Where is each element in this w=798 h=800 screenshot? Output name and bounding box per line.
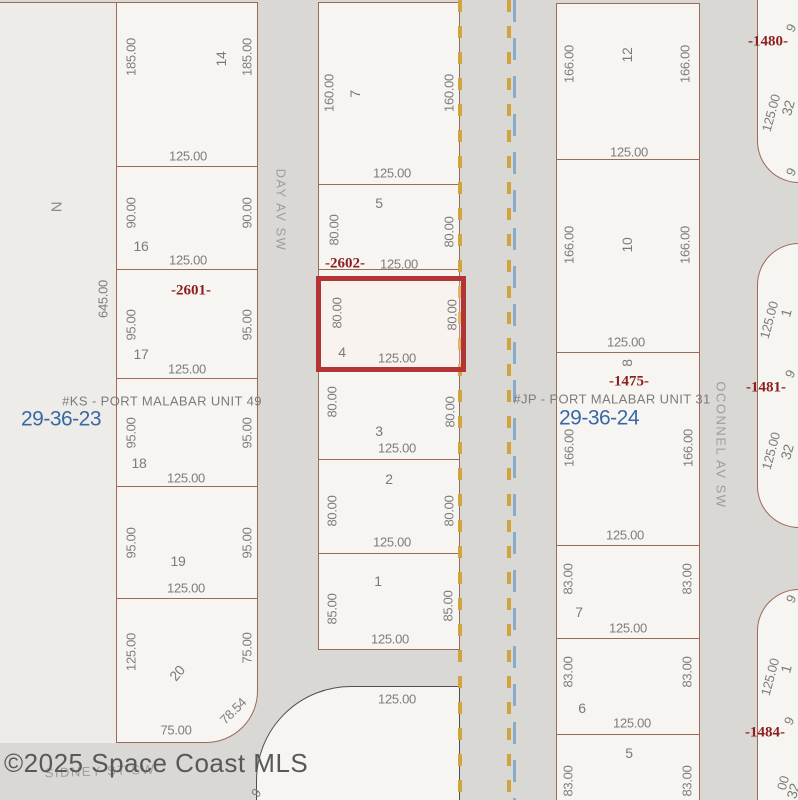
dimension-label: 80.00	[443, 216, 456, 247]
dimension-label: 125.00	[609, 622, 647, 635]
lot-number: 2	[385, 472, 393, 486]
lot-number: 8	[620, 359, 634, 367]
dimension-label: 95.00	[241, 527, 254, 558]
lot-number: 12	[620, 48, 634, 63]
dimension-label: 125.00	[167, 472, 205, 485]
dimension-label: 83.00	[562, 656, 575, 687]
lot-number: 18	[132, 456, 147, 470]
dimension-label: 125.00	[606, 529, 644, 542]
copyright-watermark: ©2025 Space Coast MLS	[4, 748, 308, 779]
lot-line	[116, 166, 258, 167]
road-edge-dash-yellow	[458, 0, 462, 800]
lot-number: 5	[625, 746, 633, 760]
dimension-label: 95.00	[241, 417, 254, 448]
lot-number: 3	[375, 424, 383, 438]
dimension-label: 80.00	[444, 396, 457, 427]
lot-line	[556, 638, 700, 639]
dimension-label: 80.00	[446, 299, 459, 330]
section-label-29-36-24: 29-36-24	[559, 408, 639, 429]
dimension-label: 125.00	[168, 363, 206, 376]
highlighted-lot-number: 4	[338, 345, 346, 359]
lot-line	[116, 486, 258, 487]
dimension-label: 125.00	[610, 146, 648, 159]
block-bottom	[256, 686, 460, 800]
dimension-label: 83.00	[562, 563, 575, 594]
lot-number: 6	[578, 701, 586, 715]
road-centerline-dash-yellow	[507, 0, 511, 800]
street-name-day-av-sw: DAY AV SW	[275, 169, 288, 252]
lot-number: 7	[348, 90, 362, 98]
dimension-label: 90.00	[241, 197, 254, 228]
dimension-label: 125.00	[167, 582, 205, 595]
lot-line	[556, 734, 700, 735]
block-address-label: -2601-	[171, 284, 211, 299]
dimension-label: 85.00	[442, 590, 455, 621]
dimension-label: 90.00	[125, 197, 138, 228]
dimension-label: 95.00	[125, 527, 138, 558]
lot-number: 17	[134, 347, 149, 361]
lot-line	[318, 553, 460, 554]
dimension-label: 80.00	[331, 297, 344, 328]
block-address-1484: -1484-	[745, 726, 785, 741]
lot-number: 32	[779, 99, 796, 117]
block-address-1480: -1480-	[748, 35, 788, 50]
lot-line	[556, 545, 700, 546]
lot-number: 5	[375, 196, 383, 210]
dimension-label: 75.00	[241, 632, 254, 663]
west-land-area	[0, 2, 116, 743]
lot-line	[116, 269, 258, 270]
lot-number: 14	[214, 52, 228, 67]
dimension-label: 125.00	[373, 167, 411, 180]
lot-line	[318, 184, 460, 185]
dimension-label: 80.00	[328, 214, 341, 245]
lot-line	[116, 598, 258, 599]
lot-number: 7	[575, 605, 583, 619]
dimension-label: 83.00	[681, 656, 694, 687]
dimension-label: 166.00	[679, 45, 692, 83]
dimension-label: 125.00	[169, 150, 207, 163]
subdivision-label-unit-31: #JP - PORT MALABAR UNIT 31	[513, 393, 710, 406]
dimension-label: 645.00	[97, 280, 110, 318]
dimension-label: 160.00	[323, 74, 336, 112]
dimension-label: 95.00	[125, 417, 138, 448]
dimension-label: 95.00	[241, 309, 254, 340]
dimension-label: 125.00	[169, 254, 207, 267]
dimension-label: 80.00	[326, 495, 339, 526]
north-indicator: N	[50, 202, 65, 213]
lot-number: 10	[620, 238, 634, 253]
dimension-label: 166.00	[682, 429, 695, 467]
lot-number: 19	[171, 554, 186, 568]
dimension-label: 125.00	[378, 442, 416, 455]
dimension-label: 166.00	[563, 45, 576, 83]
dimension-label: 75.00	[160, 724, 191, 737]
dimension-label: 125.00	[380, 258, 418, 271]
street-name-oconnel-av-sw: OCONNEL AV SW	[715, 381, 728, 508]
section-label-29-36-23: 29-36-23	[21, 409, 101, 430]
dimension-label: 125.00	[378, 352, 416, 365]
dimension-label: 80.00	[443, 495, 456, 526]
dimension-label: 166.00	[679, 226, 692, 264]
block-address-1481: -1481-	[746, 381, 786, 396]
block-address-2602: -2602-	[325, 257, 365, 272]
dimension-label: 95.00	[125, 309, 138, 340]
boundary-line	[0, 2, 116, 3]
dimension-label: 83.00	[681, 563, 694, 594]
lot-number: 1	[374, 574, 382, 588]
subdivision-label-unit-49: #KS - PORT MALABAR UNIT 49	[62, 395, 262, 408]
plat-map: ©2025 Space Coast MLS 185.0014185.00125.…	[0, 0, 798, 800]
lot-line	[318, 459, 460, 460]
lot-number: 32	[778, 443, 795, 461]
block-address-1475: -1475-	[609, 375, 649, 390]
dimension-label: 166.00	[563, 429, 576, 467]
dimension-label: 125.00	[613, 717, 651, 730]
dimension-label: 125.00	[378, 693, 416, 706]
dimension-label: 83.00	[562, 765, 575, 796]
dimension-label: 85.00	[326, 593, 339, 624]
dimension-label: 83.00	[681, 765, 694, 796]
dimension-label: 185.00	[241, 38, 254, 76]
dimension-label: 125.00	[125, 633, 138, 671]
dimension-label: 160.00	[443, 74, 456, 112]
dimension-label: 166.00	[563, 226, 576, 264]
dimension-label: 185.00	[125, 38, 138, 76]
dimension-label: 125.00	[371, 633, 409, 646]
dimension-label: 125.00	[607, 336, 645, 349]
dimension-label: 125.00	[373, 536, 411, 549]
dimension-label: 80.00	[326, 386, 339, 417]
lot-line	[556, 352, 700, 353]
lot-line	[116, 378, 258, 379]
lot-number: 16	[134, 239, 149, 253]
